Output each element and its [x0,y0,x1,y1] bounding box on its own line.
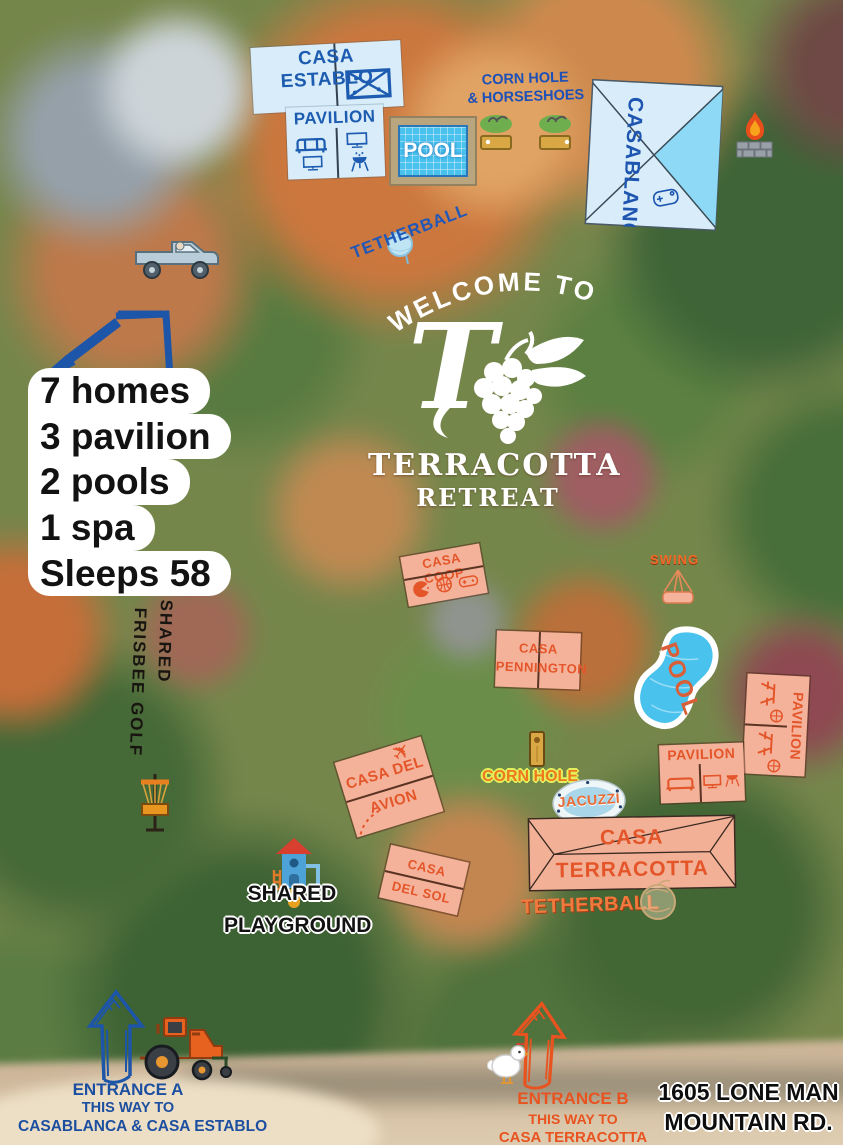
address-label: 1605 LONE MAN MOUNTAIN RD. [656,1078,841,1138]
shared-playground-line1: SHARED [224,878,360,910]
couch-icon [664,772,697,793]
stat-line: 7 homes [28,368,210,414]
tv-icon [301,154,324,172]
tv-icon [345,131,370,150]
tractor-icon [136,1014,232,1082]
logo-retreat-text: RETREAT [368,483,608,512]
horseshoe-pit-icon [477,110,515,156]
pavilion-top-text: PAVILION [286,104,384,129]
pool-water: POOL [398,125,468,177]
horseshoe-pit-icon [536,110,574,156]
entrance-b-line3: CASA TERRACOTTA [488,1128,658,1145]
shared-playground-line2: PLAYGROUND [224,910,360,942]
entrance-a-label: ENTRANCE A THIS WAY TO CASABLANCA & CASA… [18,1080,238,1136]
shared-playground-label: SHARED PLAYGROUND [224,878,360,941]
entrance-b-line2: THIS WAY TO [488,1110,658,1128]
pavilion-mid-label: PAVILION [659,743,745,804]
cornhole-horseshoes-label: CORN HOLE & HORSESHOES [457,68,593,109]
stat-line: Sleeps 58 [28,551,231,597]
casa-establo-label: CASA ESTABLO [250,40,403,114]
truck-icon [130,234,226,284]
firepit-icon [735,110,775,160]
stat-line: 2 pools [28,459,190,505]
casa-terracotta-line2: TERRACOTTA [556,857,709,883]
entrance-a-line3: CASABLANCA & CASA ESTABLO [18,1118,238,1137]
logo-wordmark: TERRACOTTA RETREAT [368,448,608,512]
tv-icon [702,773,723,790]
casa-pennington-text: CASA PENNINGTON [495,639,580,680]
casa-terracotta-line1: CASA [600,825,664,849]
casa-pennington-label: CASA PENNINGTON [495,631,581,690]
address-line1: 1605 LONE MAN [656,1078,841,1108]
logo-name-text: TERRACOTTA [368,448,608,483]
picnic-table-icon [755,730,778,757]
pool-top-text: POOL [403,139,463,163]
divider [745,723,787,727]
frisbee-golf-label-line1: SHARED [153,599,176,683]
pavilion-mid-text: PAVILION [659,743,744,764]
entrance-b-line1: ENTRANCE B [488,1088,658,1110]
basketball-icon [434,575,454,595]
grill-icon [724,769,741,792]
property-stats-box: 7 homes 3 pavilion 2 pools 1 spa Sleeps … [28,368,231,596]
pacman-icon [412,579,431,598]
pool-table-icon [344,67,394,101]
picnic-table-icon [758,680,781,707]
stat-line: 1 spa [28,505,155,551]
basketball-icon [769,709,784,724]
grape-logo-icon: T [408,308,593,456]
swing-icon [656,568,700,608]
cornhole-board-icon [526,730,548,770]
address-line2: MOUNTAIN RD. [656,1108,841,1138]
entrance-a-line2: THIS WAY TO [18,1100,238,1117]
terracotta-retreat-map: CASA ESTABLO PAVILION POOL CORN HOLE & H… [0,0,843,1145]
disc-golf-basket-icon [136,770,174,834]
swing-label: SWING [650,552,699,567]
pool-top-label: POOL [391,118,475,184]
chicken-icon [484,1040,530,1084]
gamepad-icon [457,572,479,589]
entrance-b-label: ENTRANCE B THIS WAY TO CASA TERRACOTTA [488,1088,658,1145]
basketball-icon [766,759,781,774]
stat-line: 3 pavilion [28,414,231,460]
divider [335,128,339,178]
entrance-a-line1: ENTRANCE A [18,1080,238,1100]
casa-terracotta-label: CASA TERRACOTTA [527,814,736,892]
couch-icon [293,132,330,155]
pavilion-top-label: PAVILION [286,104,385,179]
pavilion-right-label: PAVILION [742,673,809,776]
divider [698,764,701,802]
grill-icon [349,151,370,176]
tetherball-icon [636,876,680,922]
pool-right-shape: POOL [623,618,730,744]
casablanca-label: CASABLANCA [584,79,723,232]
